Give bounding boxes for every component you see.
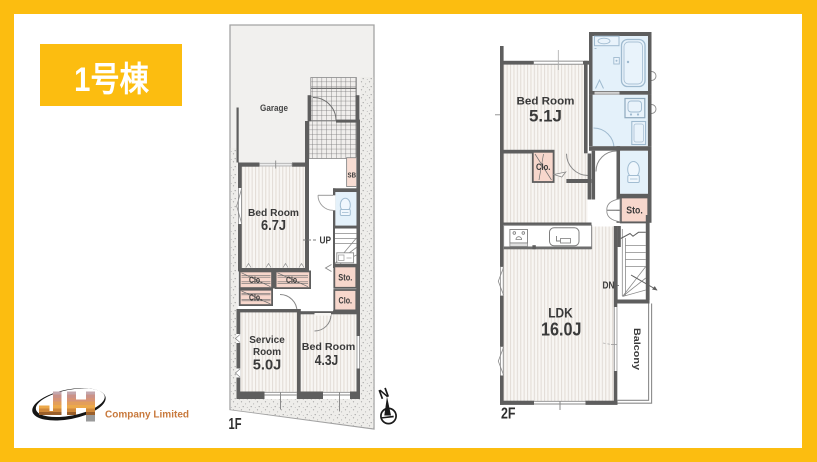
svg-text:Company Limited: Company Limited — [105, 409, 189, 421]
svg-text:Garage: Garage — [260, 103, 288, 113]
svg-text:Clo.: Clo. — [339, 296, 353, 306]
svg-text:5.1J: 5.1J — [529, 108, 562, 126]
svg-text:Bed Room: Bed Room — [517, 96, 575, 108]
svg-text:SB: SB — [348, 171, 357, 180]
svg-text:N: N — [377, 385, 391, 402]
svg-text:Sto.: Sto. — [338, 273, 352, 283]
svg-text:Clo.: Clo. — [536, 162, 551, 172]
svg-text:1F: 1F — [229, 416, 242, 433]
svg-text:Clo.: Clo. — [286, 275, 299, 285]
svg-text:Sto.: Sto. — [626, 205, 643, 217]
svg-text:Service: Service — [249, 334, 285, 346]
svg-text:Balcony: Balcony — [631, 328, 642, 371]
svg-text:Clo.: Clo. — [249, 275, 262, 285]
svg-text:16.0J: 16.0J — [541, 319, 582, 340]
svg-text:Clo.: Clo. — [249, 293, 262, 303]
svg-text:UP: UP — [320, 235, 332, 247]
svg-text:5.0J: 5.0J — [253, 357, 282, 374]
svg-text:2F: 2F — [501, 406, 516, 423]
svg-text:4.3J: 4.3J — [315, 352, 339, 369]
svg-text:DN: DN — [603, 281, 615, 292]
svg-text:6.7J: 6.7J — [261, 217, 286, 234]
